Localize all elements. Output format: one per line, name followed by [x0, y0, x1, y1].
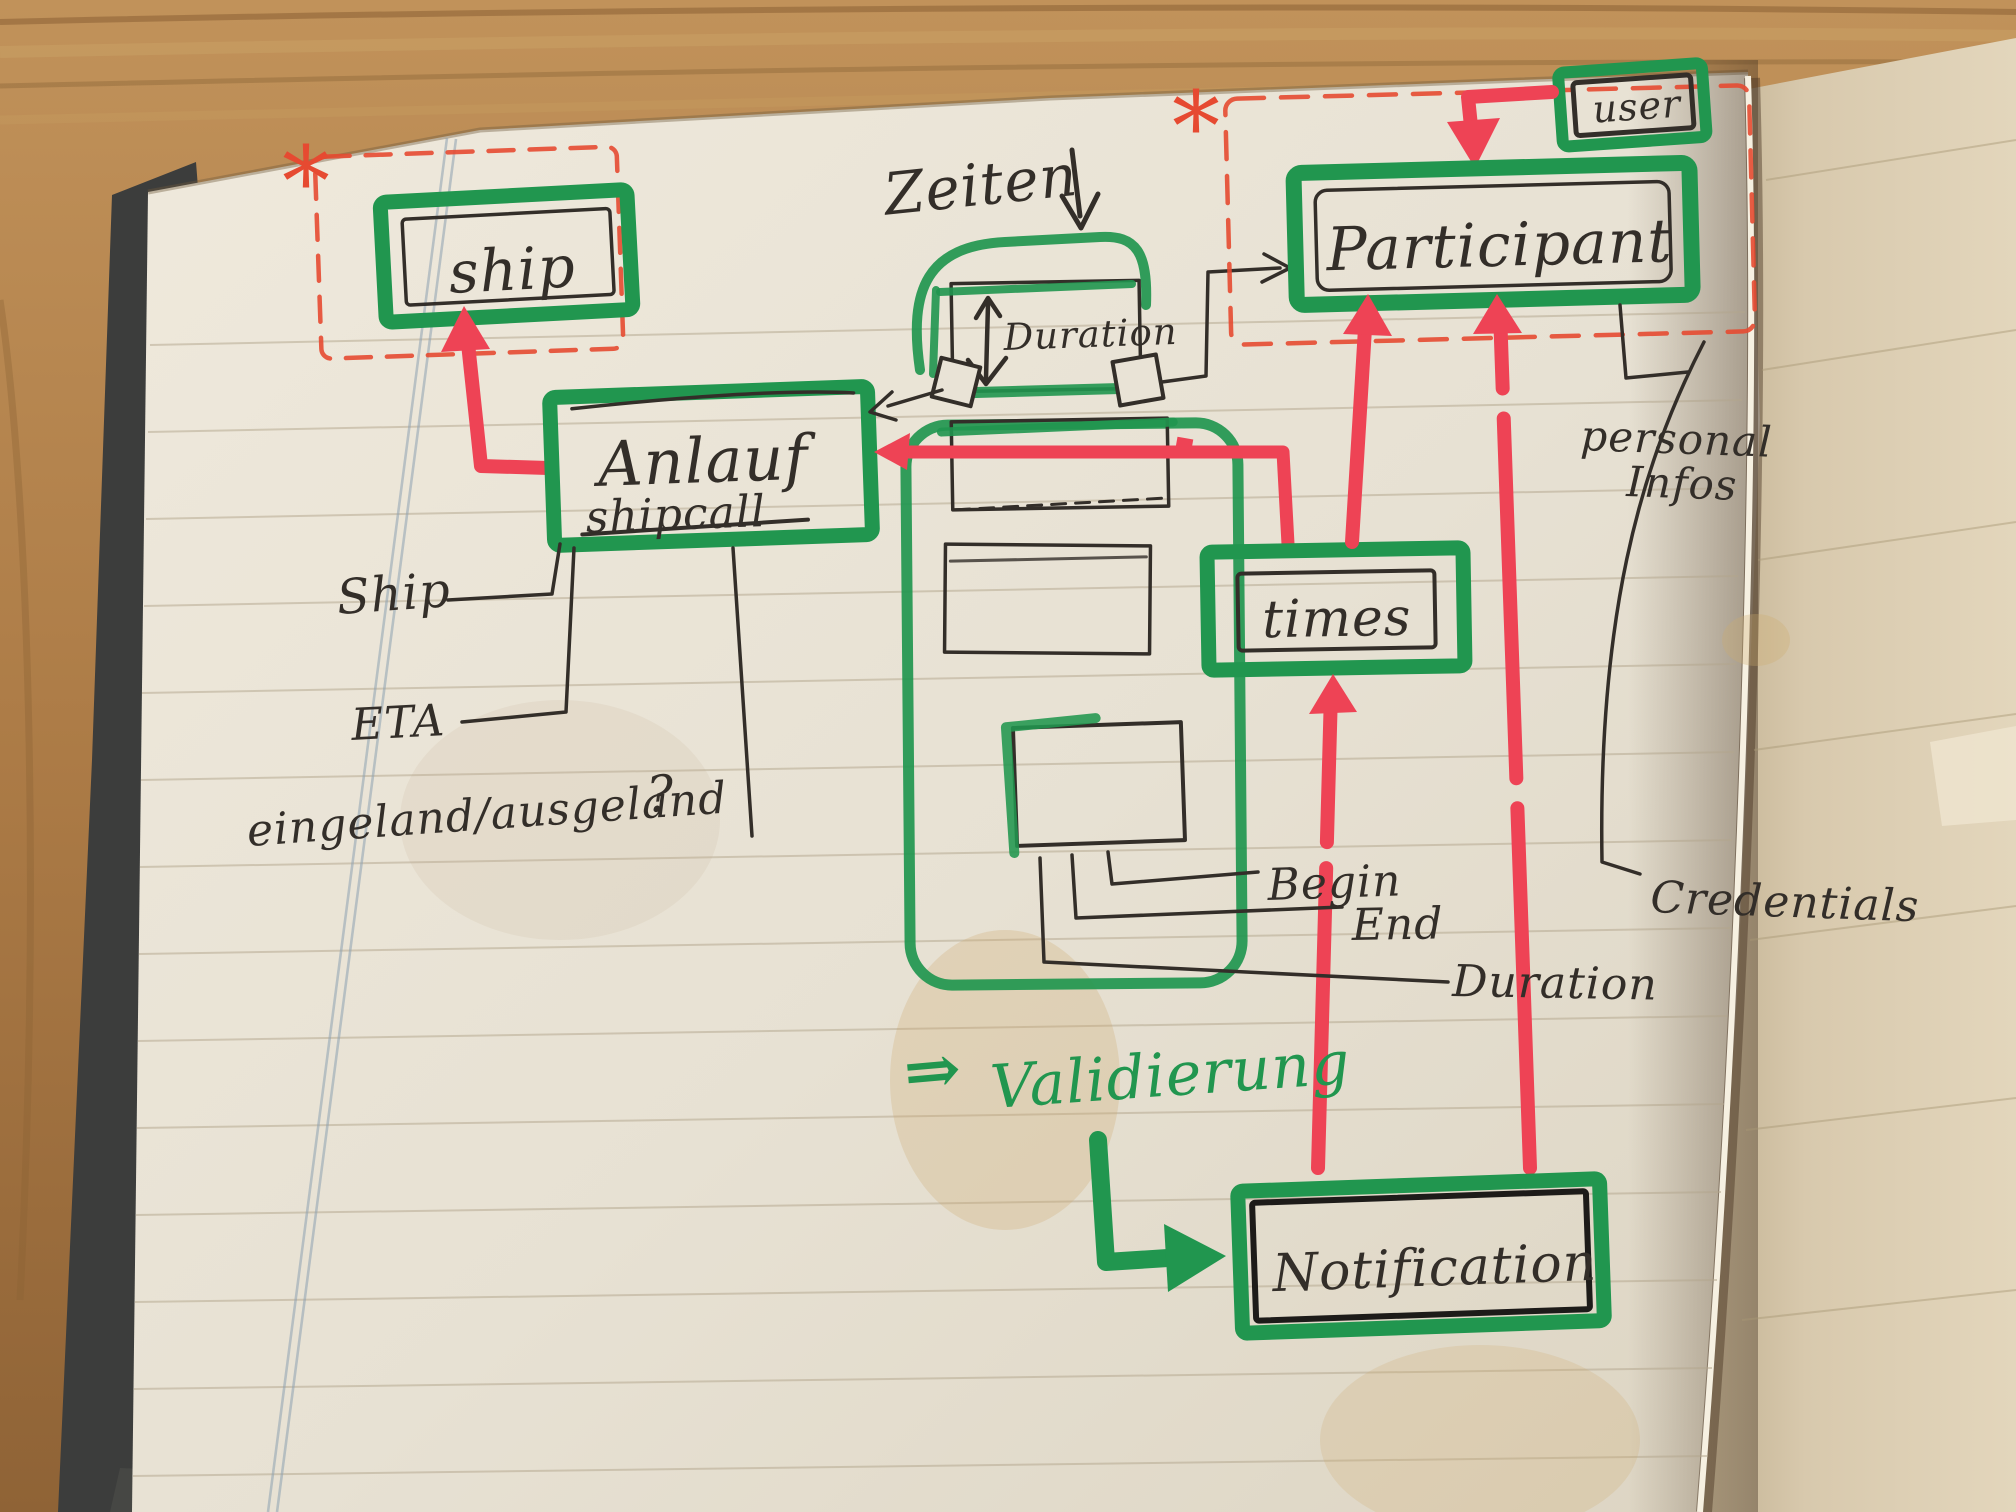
- duration-left-connector-square: [932, 358, 980, 406]
- asterisk-right: *: [1172, 71, 1220, 183]
- credentials-label: Credentials: [1650, 872, 1921, 932]
- shipcall-box-subtitle: shipcall: [585, 486, 767, 543]
- notebook-photo: * ship Anlauf shipcall Zeiten: [0, 0, 2016, 1512]
- duration-attr-label: Duration: [1451, 956, 1658, 1011]
- eta-label: ETA: [349, 695, 446, 751]
- notification-box-label: Notification: [1270, 1233, 1599, 1304]
- end-label: End: [1350, 898, 1444, 951]
- ship-attr-label: Ship: [335, 562, 453, 626]
- validierung-arrow-glyph: ⇒: [901, 1028, 966, 1113]
- ship-box-label: ship: [447, 232, 577, 307]
- duration-box-label: Duration: [1002, 310, 1178, 359]
- times-box-label: times: [1262, 588, 1412, 651]
- participant-box-label: Participant: [1325, 206, 1674, 285]
- user-box-label: user: [1591, 81, 1684, 131]
- duration-right-connector-square: [1113, 355, 1164, 406]
- notebook: [58, 38, 2016, 1512]
- asterisk-left: *: [282, 126, 330, 238]
- inout-question-mark: ?: [645, 764, 677, 824]
